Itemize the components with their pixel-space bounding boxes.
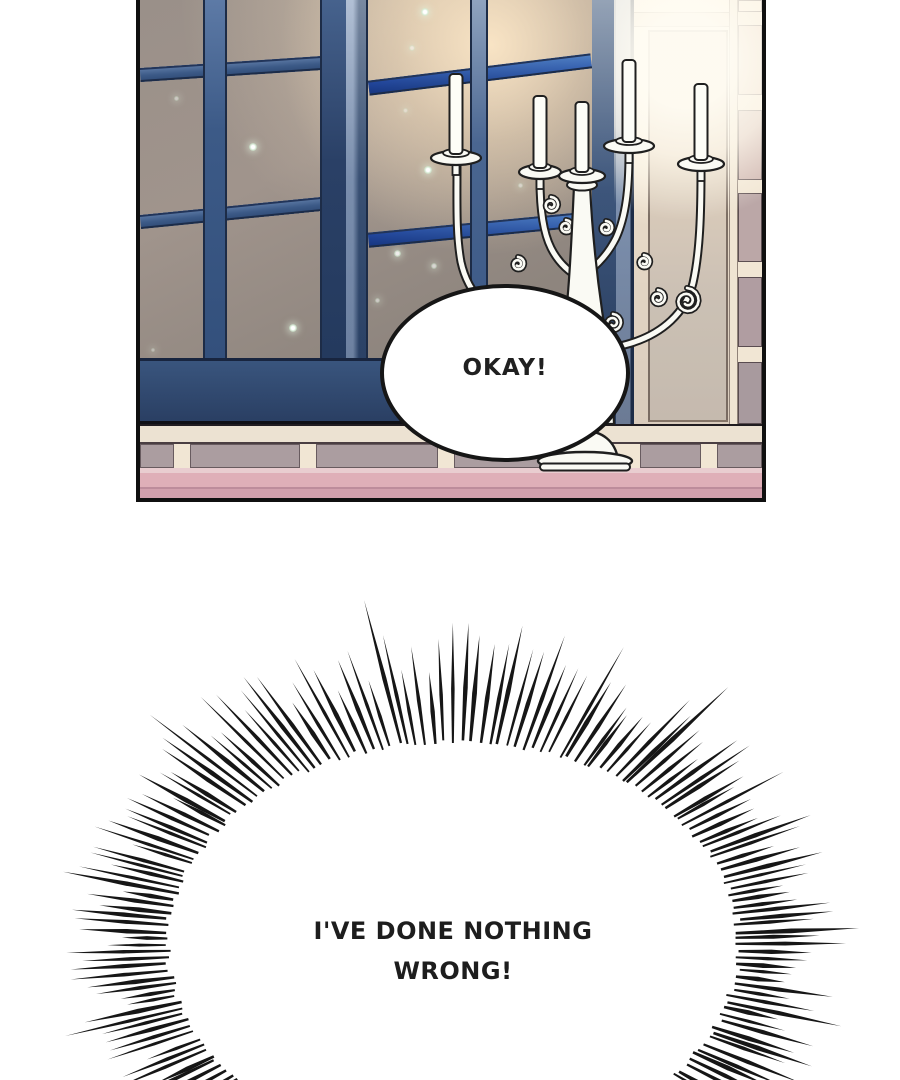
speech-bubble-okay: OKAY! bbox=[380, 284, 630, 462]
burst-shout-line1: I'VE DONE NOTHING bbox=[314, 911, 593, 951]
speech-bubble-text: OKAY! bbox=[462, 355, 547, 391]
burst-shout-line2: WRONG! bbox=[314, 951, 593, 991]
comic-page: OKAY! I'VE DONE NOTHING WRONG! bbox=[0, 0, 900, 1080]
burst-shout-text: I'VE DONE NOTHING WRONG! bbox=[314, 911, 593, 991]
speed-line-burst bbox=[0, 560, 900, 1080]
comic-panel: OKAY! bbox=[136, 0, 766, 502]
